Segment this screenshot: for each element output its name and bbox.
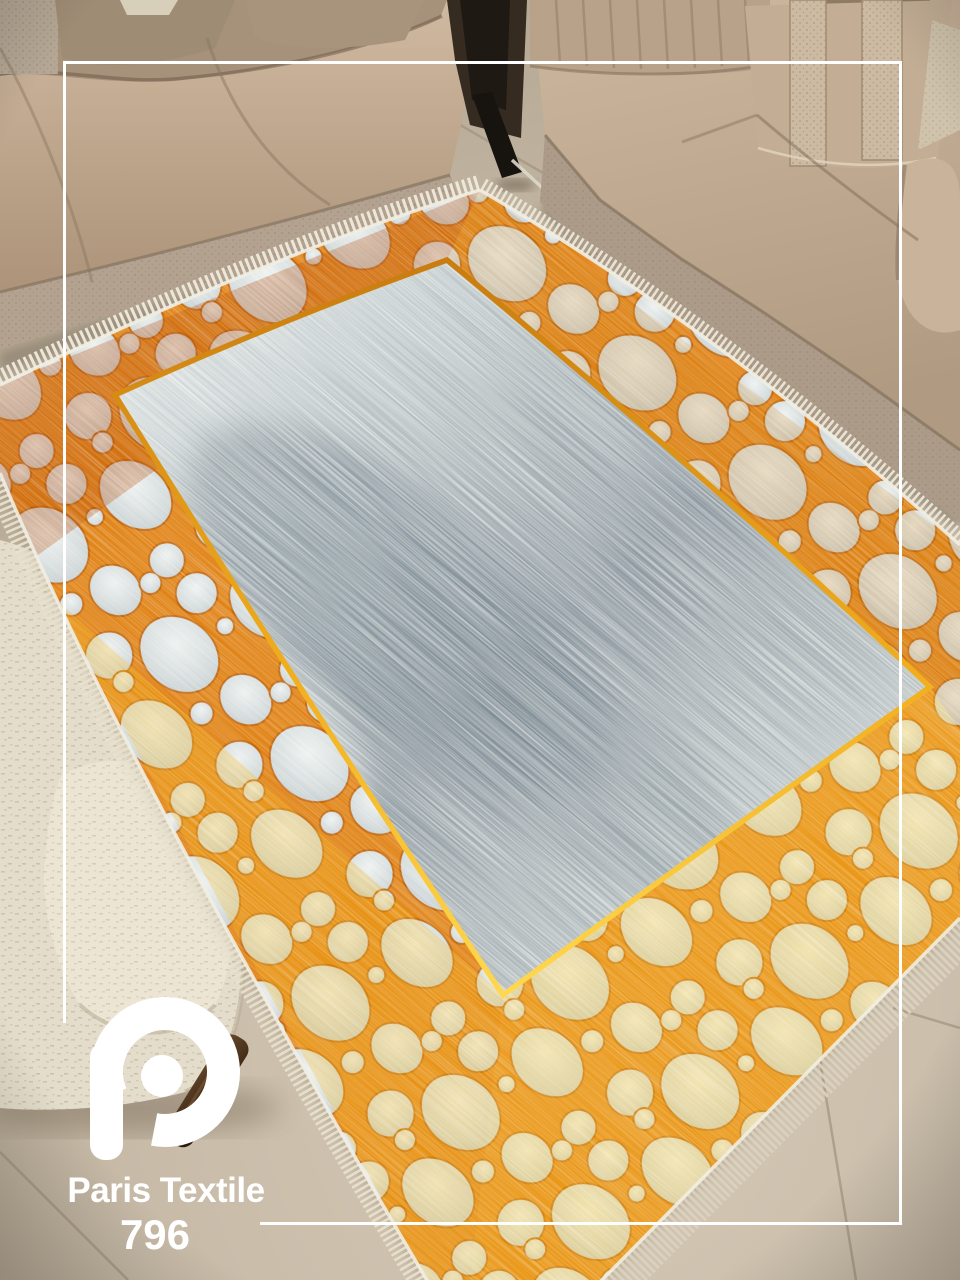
frame-left <box>63 61 66 1023</box>
frame-bottom <box>260 1222 902 1225</box>
paris-textile-logo-icon <box>82 988 248 1168</box>
brand-name: Paris Textile <box>30 1170 302 1212</box>
product-number: 796 <box>30 1212 280 1258</box>
frame-top <box>63 61 902 64</box>
frame-right <box>899 61 902 1225</box>
product-photo-stage: Paris Textile 796 <box>0 0 960 1280</box>
